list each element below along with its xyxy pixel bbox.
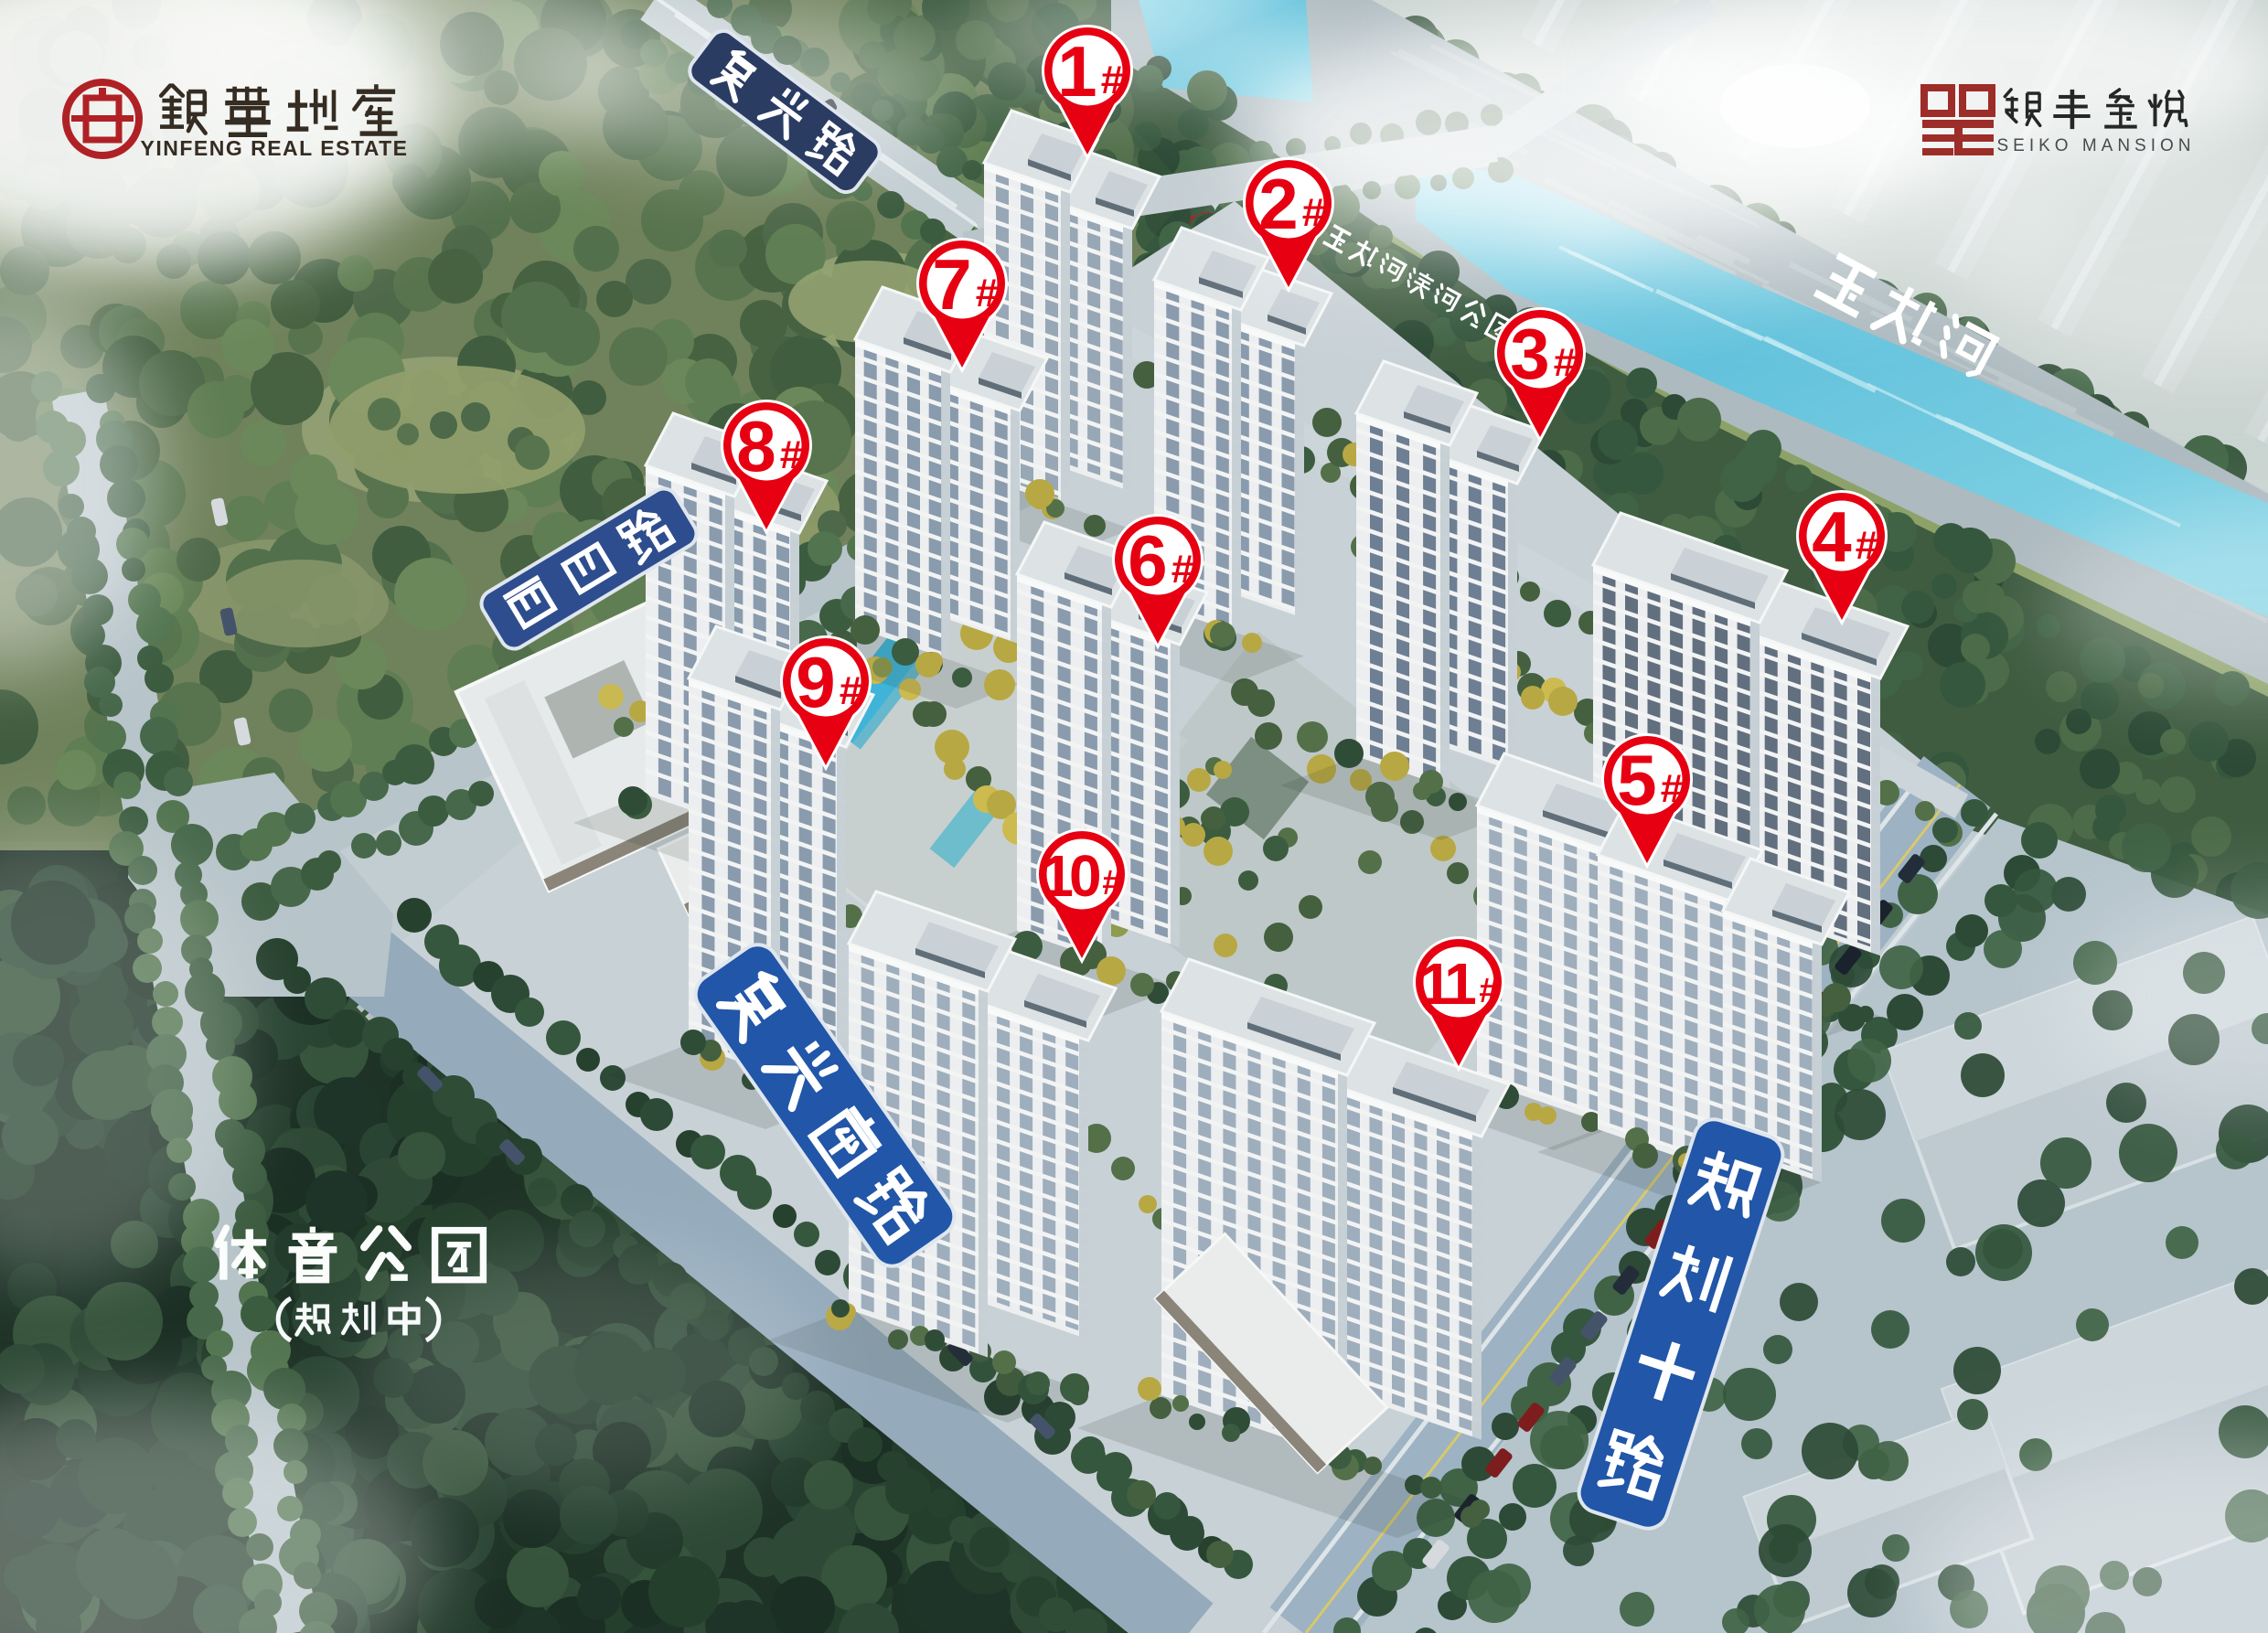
svg-text:9: 9	[796, 642, 835, 722]
svg-text:#: #	[1302, 190, 1324, 235]
svg-text:#: #	[1479, 972, 1498, 1010]
svg-text:#: #	[1661, 766, 1683, 811]
svg-text:#: #	[780, 432, 802, 477]
svg-text:YINFENG REAL ESTATE: YINFENG REAL ESTATE	[140, 136, 408, 160]
svg-text:#: #	[1554, 340, 1576, 385]
svg-text:10: 10	[1041, 843, 1099, 909]
svg-text:#: #	[1171, 547, 1193, 592]
svg-text:5: 5	[1617, 740, 1656, 820]
svg-text:#: #	[976, 271, 998, 315]
svg-text:2: 2	[1258, 164, 1298, 244]
svg-text:3: 3	[1510, 314, 1549, 394]
svg-text:1: 1	[1057, 31, 1097, 112]
svg-text:SEIKO MANSION: SEIKO MANSION	[1996, 136, 2195, 155]
svg-text:#: #	[1102, 864, 1121, 902]
svg-text:6: 6	[1128, 520, 1167, 601]
svg-text:#: #	[1101, 58, 1123, 102]
svg-text:#: #	[840, 668, 861, 713]
svg-text:#: #	[1856, 523, 1878, 568]
svg-text:4: 4	[1812, 496, 1851, 577]
svg-text:7: 7	[932, 244, 971, 325]
svg-text:8: 8	[736, 406, 776, 486]
svg-text:11: 11	[1419, 951, 1475, 1017]
